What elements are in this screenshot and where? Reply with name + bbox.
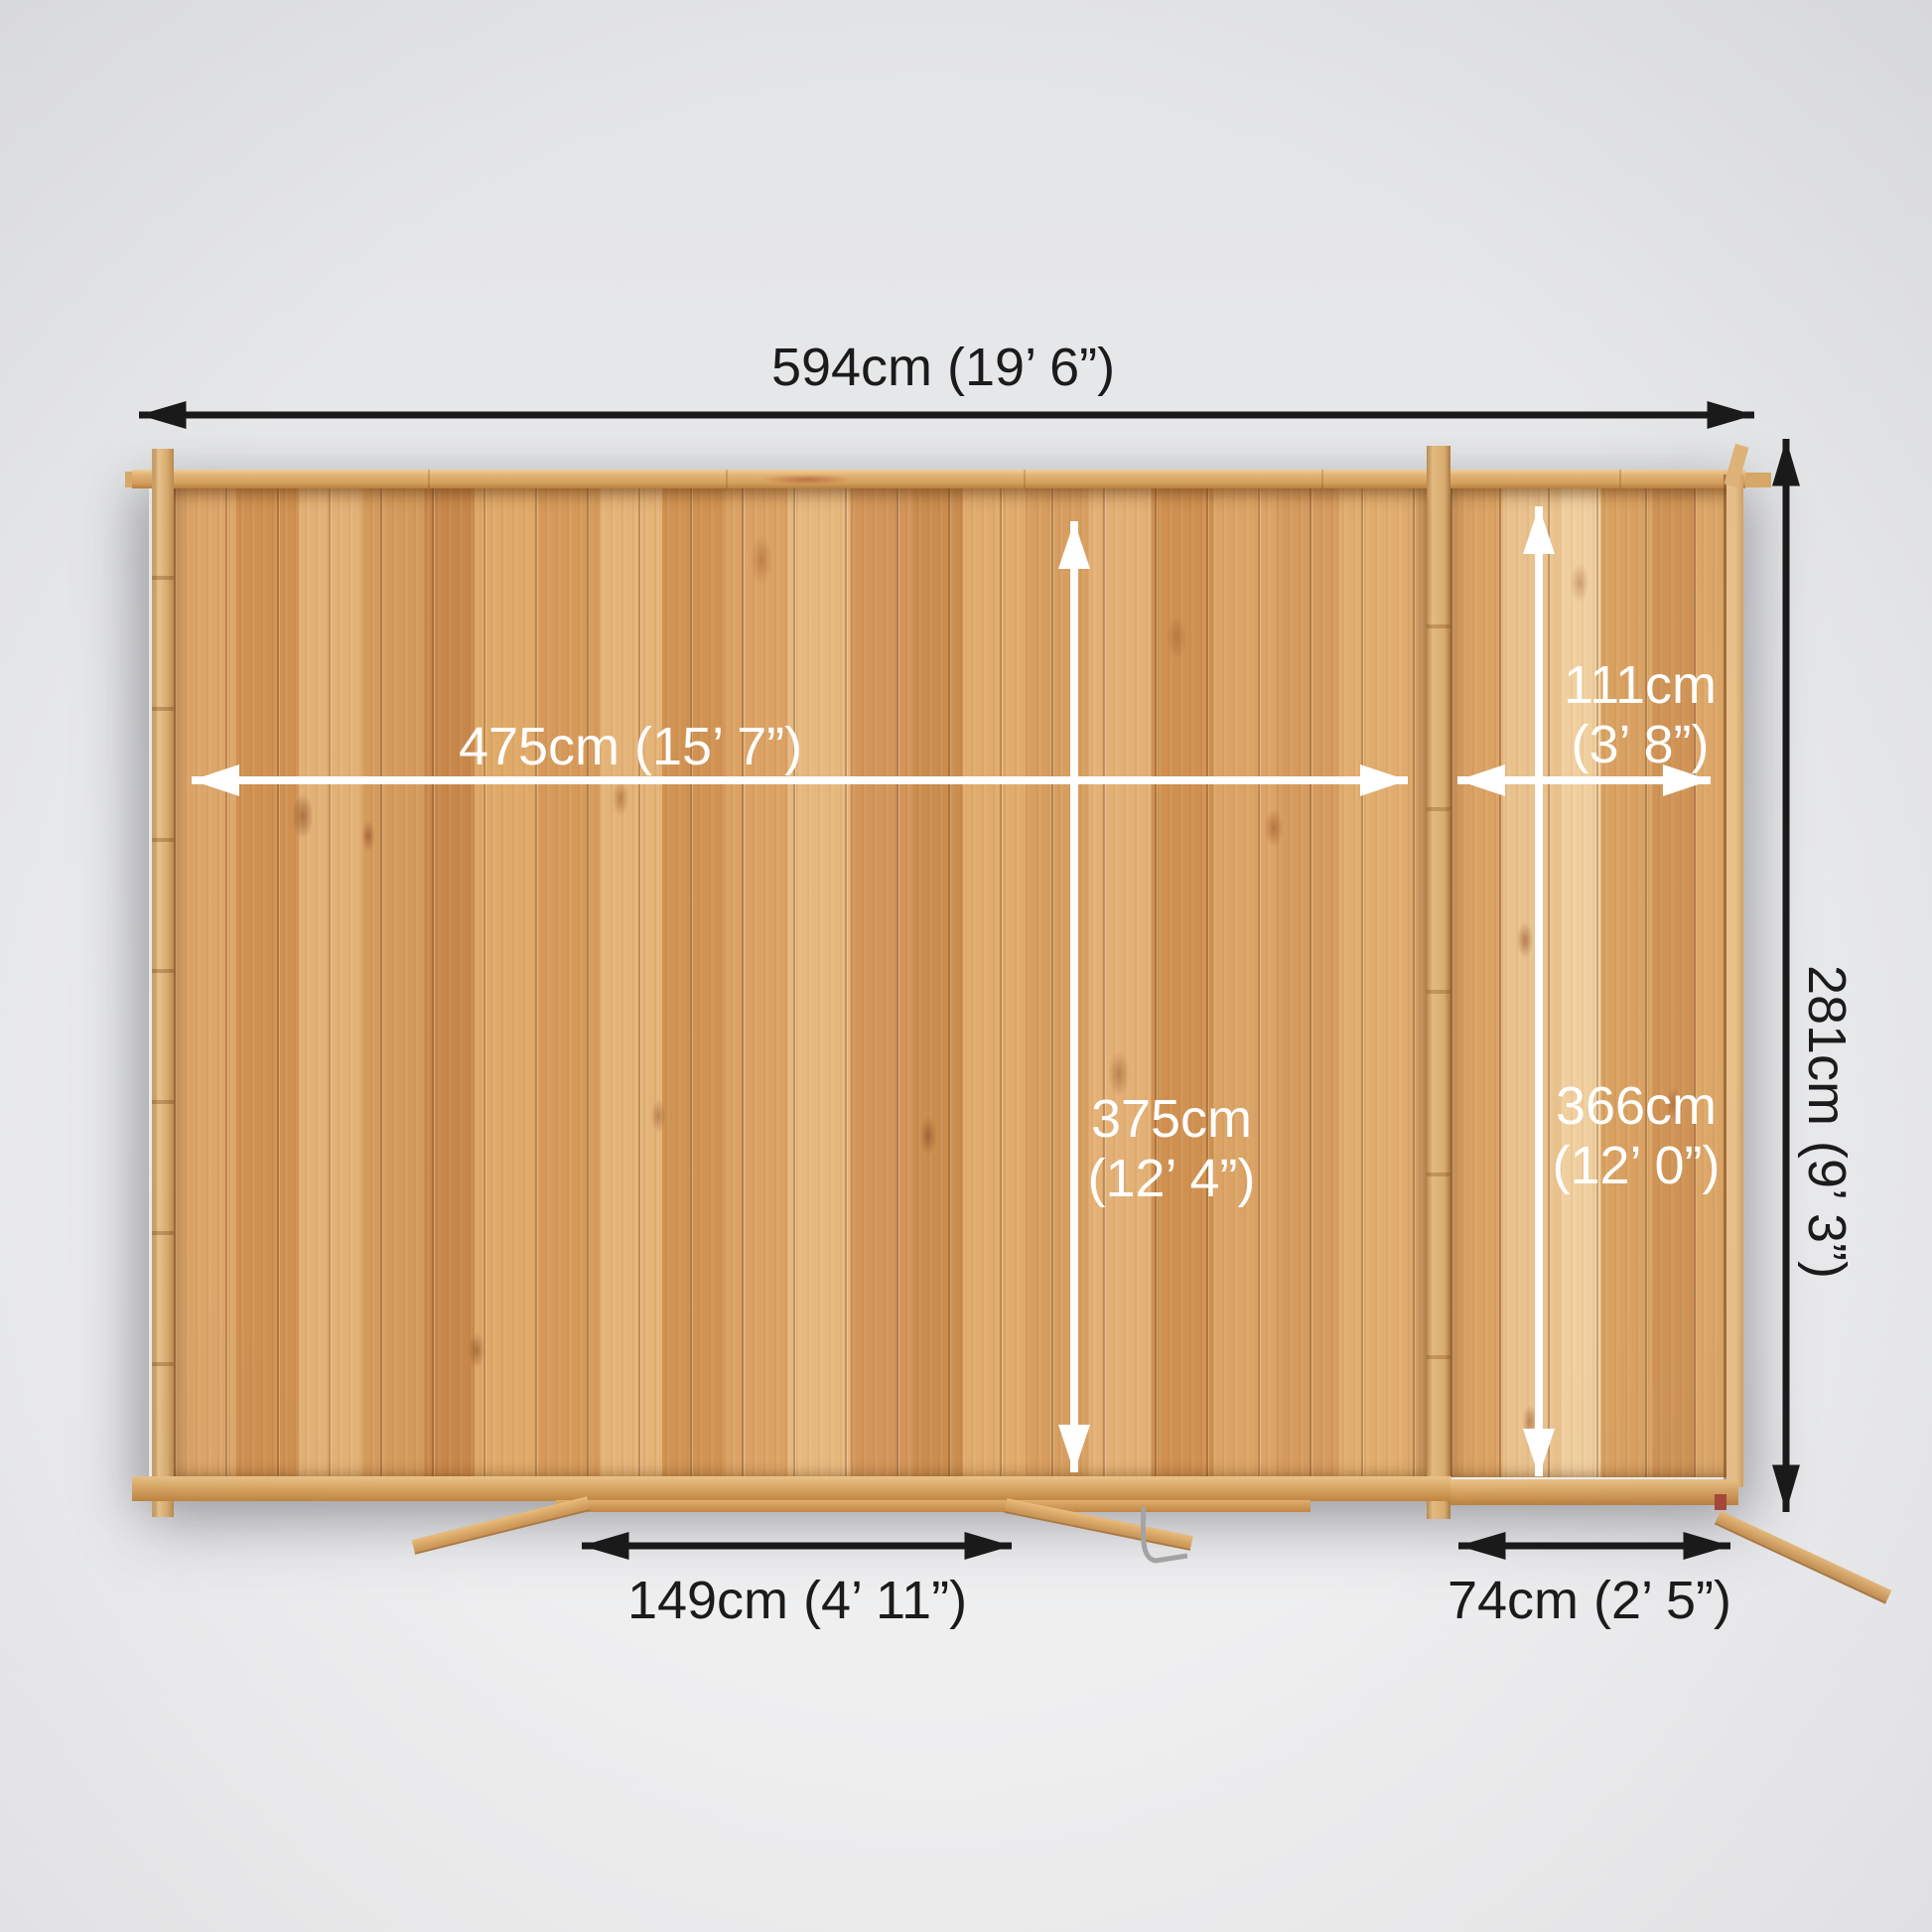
- dim-main-depth-ft: (12’ 4”): [1087, 1149, 1255, 1208]
- floor-plan-scene: 594cm (19’ 6”) 281cm (9’ 3”) 475cm (15’ …: [0, 0, 1932, 1932]
- dim-label-main-internal-width: 475cm (15’ 7”): [459, 717, 802, 776]
- door-stay-hook: [1143, 1507, 1187, 1561]
- dim-label-main-internal-depth: 375cm (12’ 4”): [1087, 1089, 1255, 1208]
- dim-side-depth-ft: (12’ 0”): [1552, 1136, 1720, 1195]
- dim-side-width-cm: 111cm: [1564, 655, 1717, 715]
- dim-label-side-internal-depth: 366cm (12’ 0”): [1552, 1076, 1720, 1195]
- dim-label-side-internal-width: 111cm (3’ 8”): [1564, 655, 1717, 774]
- dim-main-depth-cm: 375cm: [1087, 1089, 1255, 1149]
- dim-label-overall-depth: 281cm (9’ 3”): [1797, 965, 1857, 1279]
- dim-label-side-door-width: 74cm (2’ 5”): [1448, 1571, 1731, 1630]
- dim-side-width-ft: (3’ 8”): [1564, 715, 1717, 774]
- dimension-arrows-layer: [0, 0, 1932, 1932]
- dim-label-overall-width: 594cm (19’ 6”): [771, 338, 1115, 397]
- dim-label-main-door-width: 149cm (4’ 11”): [627, 1571, 967, 1630]
- dim-side-depth-cm: 366cm: [1552, 1076, 1720, 1136]
